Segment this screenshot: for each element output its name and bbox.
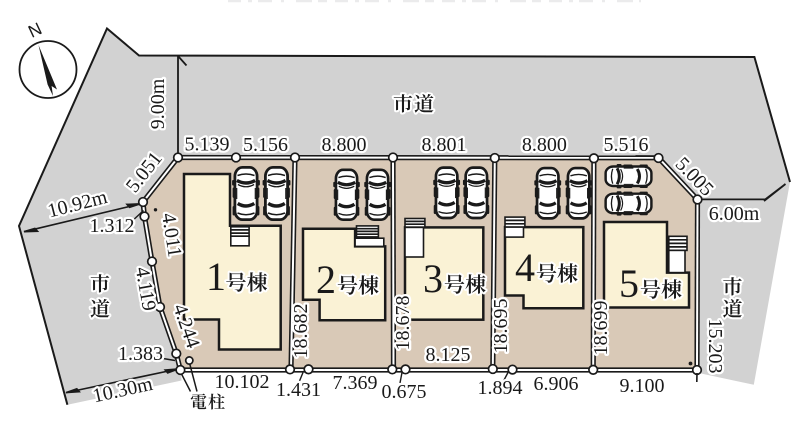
svg-text:1.383: 1.383 [118,343,163,365]
svg-text:0.675: 0.675 [382,381,427,403]
svg-text:5.139: 5.139 [185,134,230,156]
svg-text:3: 3 [423,256,443,301]
svg-text:4: 4 [515,245,535,290]
svg-text:15.203: 15.203 [704,319,726,374]
svg-text:2: 2 [316,257,336,302]
svg-text:5: 5 [619,261,639,306]
svg-text:6.906: 6.906 [534,373,579,395]
svg-text:8.800: 8.800 [322,134,367,156]
svg-text:18.695: 18.695 [490,299,512,354]
svg-text:10.102: 10.102 [215,371,270,393]
svg-text:5.156: 5.156 [243,134,288,156]
svg-text:6.00m: 6.00m [709,203,760,225]
svg-text:5.516: 5.516 [604,134,649,156]
svg-text:8.801: 8.801 [422,134,467,156]
svg-text:7.369: 7.369 [333,372,378,394]
svg-text:18.699: 18.699 [590,301,612,356]
svg-text:18.682: 18.682 [290,304,312,359]
svg-text:18.678: 18.678 [392,296,414,351]
svg-text:1: 1 [206,254,226,299]
svg-text:9.100: 9.100 [620,375,665,397]
svg-text:8.125: 8.125 [426,344,471,366]
svg-text:1.431: 1.431 [276,379,321,401]
svg-text:1.894: 1.894 [478,377,523,399]
svg-text:9.00m: 9.00m [147,78,169,129]
svg-text:8.800: 8.800 [522,134,567,156]
svg-text:1.312: 1.312 [90,215,135,237]
